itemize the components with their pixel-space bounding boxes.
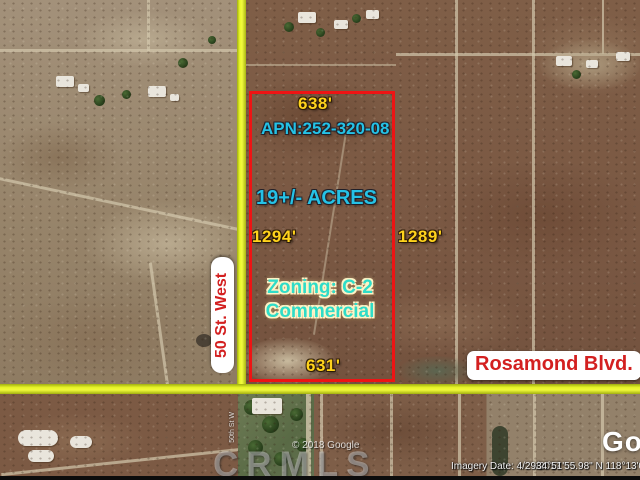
tree bbox=[352, 14, 361, 23]
building bbox=[78, 84, 89, 92]
building bbox=[28, 450, 54, 462]
zoning-line2: Commercial bbox=[248, 300, 392, 324]
bottom-bar bbox=[0, 476, 640, 480]
coordinates: 34°51'55.98" N 118°13'09.08" W bbox=[536, 461, 640, 472]
parcel-line bbox=[390, 394, 393, 480]
tree bbox=[94, 95, 105, 106]
tree bbox=[178, 58, 188, 68]
building bbox=[252, 398, 282, 414]
dirt-road bbox=[0, 49, 238, 52]
dirt-road bbox=[532, 0, 535, 388]
acreage-label: 19+/- ACRES bbox=[256, 187, 377, 210]
tree bbox=[208, 36, 216, 44]
building bbox=[616, 52, 630, 61]
zoning-label: Zoning: C-2 Commercial bbox=[248, 276, 392, 324]
google-logo: Go bbox=[602, 426, 640, 458]
building bbox=[70, 436, 92, 448]
dimension-right: 1289' bbox=[398, 227, 442, 247]
building bbox=[334, 20, 348, 29]
building bbox=[18, 430, 58, 446]
dimension-bottom: 631' bbox=[306, 356, 340, 376]
highlighted-street-horizontal bbox=[0, 384, 640, 394]
tree bbox=[122, 90, 131, 99]
dimension-left: 1294' bbox=[252, 227, 296, 247]
building bbox=[366, 10, 379, 19]
highlighted-street-vertical bbox=[237, 0, 246, 393]
tree bbox=[572, 70, 581, 79]
building bbox=[586, 60, 598, 68]
dirt-road bbox=[246, 64, 396, 66]
building bbox=[170, 94, 179, 101]
dimension-top: 638' bbox=[298, 94, 332, 114]
tree bbox=[262, 416, 279, 433]
street-sign-50th: 50 St. West bbox=[211, 257, 234, 373]
dirt-road bbox=[455, 0, 458, 388]
google-copyright: © 2018 Google bbox=[292, 440, 359, 451]
satellite-map: 638' 1294' 1289' 631' APN:252-320-08 19+… bbox=[0, 0, 640, 480]
dark-spot bbox=[196, 334, 212, 347]
tree bbox=[284, 22, 294, 32]
vegetation-patch bbox=[398, 356, 476, 386]
dirt-road bbox=[147, 0, 150, 51]
building bbox=[298, 12, 316, 23]
building bbox=[56, 76, 74, 87]
street-sign-rosamond: Rosamond Blvd. bbox=[467, 351, 640, 380]
building bbox=[556, 56, 572, 66]
tree bbox=[290, 408, 303, 421]
map-street-label: 50th St W bbox=[229, 412, 236, 443]
building bbox=[148, 86, 166, 97]
zoning-line1: Zoning: C-2 bbox=[248, 276, 392, 300]
apn-label: APN:252-320-08 bbox=[261, 119, 390, 139]
tree bbox=[316, 28, 325, 37]
